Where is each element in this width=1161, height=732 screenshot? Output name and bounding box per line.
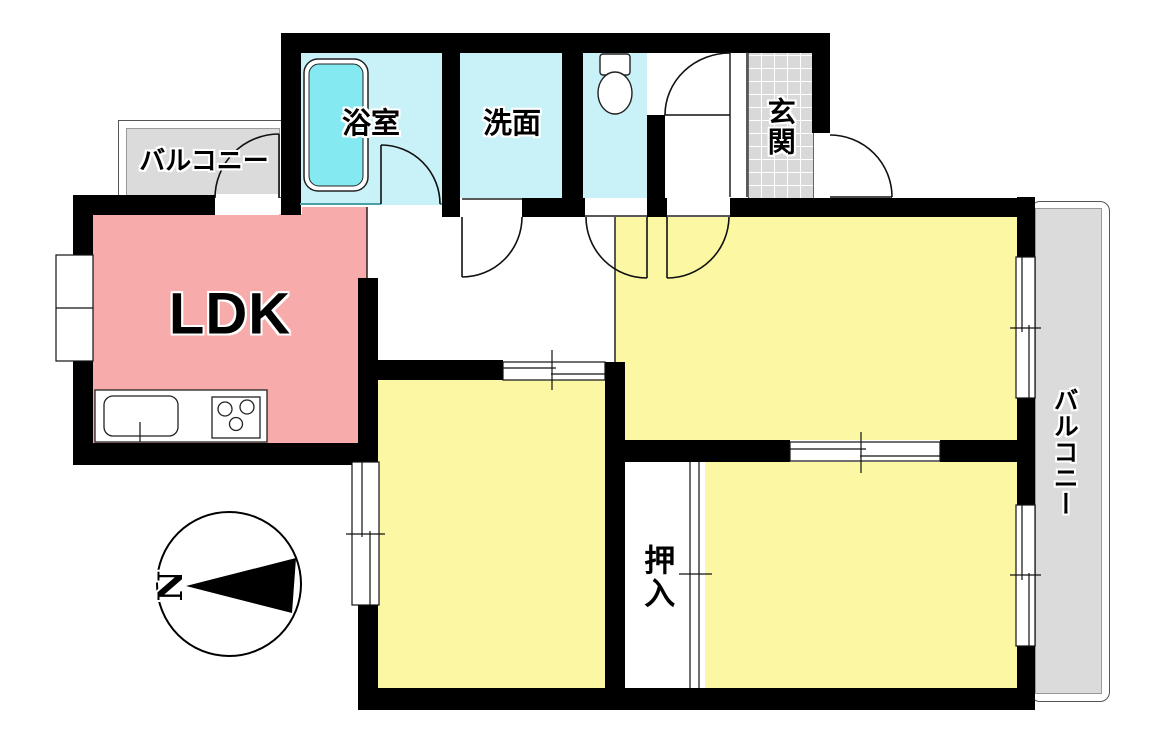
wall xyxy=(812,52,830,133)
wall xyxy=(1017,398,1035,505)
room-toilet xyxy=(583,52,647,198)
wall xyxy=(358,278,378,370)
compass-needle-icon xyxy=(186,558,296,613)
wall xyxy=(358,688,1035,710)
wall xyxy=(647,198,667,217)
wall xyxy=(562,33,583,217)
room-bedroom-top-right xyxy=(615,217,1017,440)
wall xyxy=(625,440,790,462)
doorway-washroom xyxy=(462,198,522,217)
compass: N xyxy=(151,512,301,656)
label-entrance: 玄関 xyxy=(765,97,794,157)
window-ldk-west xyxy=(56,255,93,361)
room-bedroom-bottom-right xyxy=(705,462,1017,688)
wall xyxy=(1017,646,1035,690)
wall xyxy=(73,195,215,215)
doorway-balcony xyxy=(215,194,279,215)
wall xyxy=(940,440,1018,462)
compass-north-label: N xyxy=(151,570,191,601)
door-front xyxy=(830,135,892,197)
wall xyxy=(73,195,93,257)
floor-plan: N バルコニー 浴室 洗面 玄関 LDK 押入 バルコニー xyxy=(0,0,1161,732)
label-bathroom: 浴室 xyxy=(342,109,400,139)
wall xyxy=(358,605,378,690)
label-balcony-right: バルコニー xyxy=(1051,387,1077,517)
wall xyxy=(281,33,301,215)
label-balcony-top: バルコニー xyxy=(139,147,268,174)
doorway-hall-b xyxy=(667,198,730,217)
wall xyxy=(730,198,1018,217)
doorway-hall-a xyxy=(585,198,647,217)
room-bedroom-bottom-left xyxy=(378,380,605,688)
wall xyxy=(442,33,460,217)
wall xyxy=(522,198,585,217)
wall xyxy=(358,360,503,380)
wall xyxy=(281,33,830,53)
label-ldk: LDK xyxy=(169,285,291,346)
label-washroom: 洗面 xyxy=(483,109,541,139)
wall xyxy=(73,443,360,465)
wall xyxy=(647,115,665,198)
label-closet: 押入 xyxy=(640,544,673,610)
wall xyxy=(605,362,625,690)
wall xyxy=(1017,197,1035,259)
door-toilet xyxy=(665,53,730,115)
door-washroom xyxy=(462,217,522,277)
